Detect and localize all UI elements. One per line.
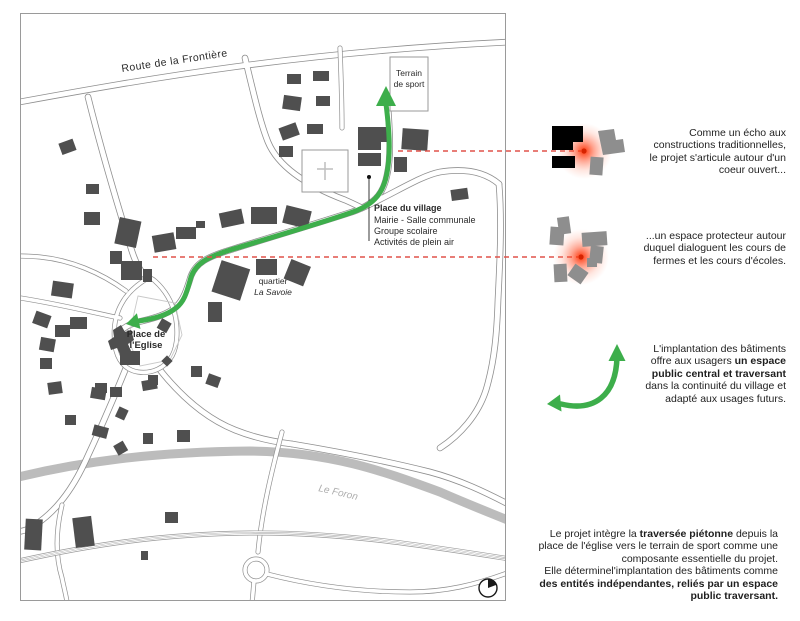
heart-dot: [581, 148, 586, 153]
note3-line5: adapté aux usages futurs.: [645, 393, 786, 405]
place-du-village-title: Place du village: [374, 203, 442, 213]
note2-line1: ...un espace protecteur autour: [644, 230, 786, 242]
note3-line1: L'implantation des bâtiments: [645, 343, 786, 355]
note-implantation: L'implantation des bâtiments offre aux u…: [645, 343, 786, 405]
terrain-label-line1: Terrain: [396, 68, 422, 78]
note2-line3: fermes et les cours d'écoles.: [644, 255, 786, 267]
place-du-village-line1: Mairie - Salle communale: [374, 215, 476, 225]
cluster-traditional-farms: [549, 216, 609, 285]
note-echo-traditions: Comme un écho aux constructions traditio…: [649, 127, 786, 177]
terrain-label-line2: de sport: [394, 79, 425, 89]
note4-line1: Le projet intègre la traversée piétonne …: [538, 528, 778, 540]
green-double-arrow: [547, 344, 626, 412]
note4-line4: Elle déterminel'implantation des bâtimen…: [538, 565, 778, 577]
cluster-project-echo: [552, 123, 625, 179]
note1-line4: coeur ouvert...: [649, 164, 786, 176]
eglise-label-line2: l'Eglise: [130, 340, 163, 351]
note-traversee-pietonne: Le projet intègre la traversée piétonne …: [538, 528, 778, 602]
note1-line1: Comme un écho aux: [649, 127, 786, 139]
note1-line3: le projet s'articule autour d'un: [649, 152, 786, 164]
plan-board: Route de la Frontière Terrain de sport P…: [0, 0, 800, 621]
note4-line3: composante essentielle du projet.: [538, 553, 778, 565]
note4-line6: public traversant.: [538, 590, 778, 602]
eglise-label-line1: Place de: [127, 329, 166, 340]
note-espace-protecteur: ...un espace protecteur autour duquel di…: [644, 230, 786, 267]
quartier-label: quartier: [259, 276, 288, 286]
note3-line2: offre aux usagers un espace: [645, 355, 786, 367]
note3-line4: dans la continuité du village et: [645, 380, 786, 392]
place-du-village-line3: Activités de plein air: [374, 237, 454, 247]
place-du-village-line2: Groupe scolaire: [374, 226, 438, 236]
quartier-name-label: La Savoie: [254, 287, 292, 297]
cemetery-plot: [302, 150, 348, 192]
compass-icon: [479, 579, 497, 597]
note3-line3: public central et traversant: [645, 368, 786, 380]
note1-line2: constructions traditionnelles,: [649, 139, 786, 151]
heart-dot: [578, 254, 583, 259]
note4-line5: des entités indépendantes, reliés par un…: [538, 578, 778, 590]
note4-line2: place de l'église vers le terrain de spo…: [538, 540, 778, 552]
note2-line2: duquel dialoguent les cours de: [644, 242, 786, 254]
